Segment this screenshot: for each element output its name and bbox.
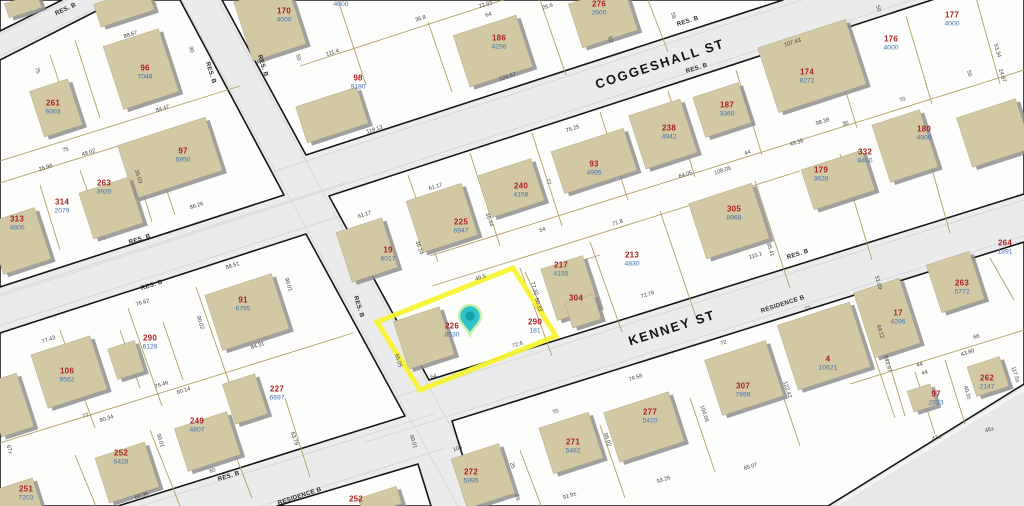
map-canvas[interactable]: COGGESHALL STKENNEY STRES. BRES. BRES. B… — [0, 0, 1024, 506]
parcel-map-graphics — [0, 0, 1024, 506]
